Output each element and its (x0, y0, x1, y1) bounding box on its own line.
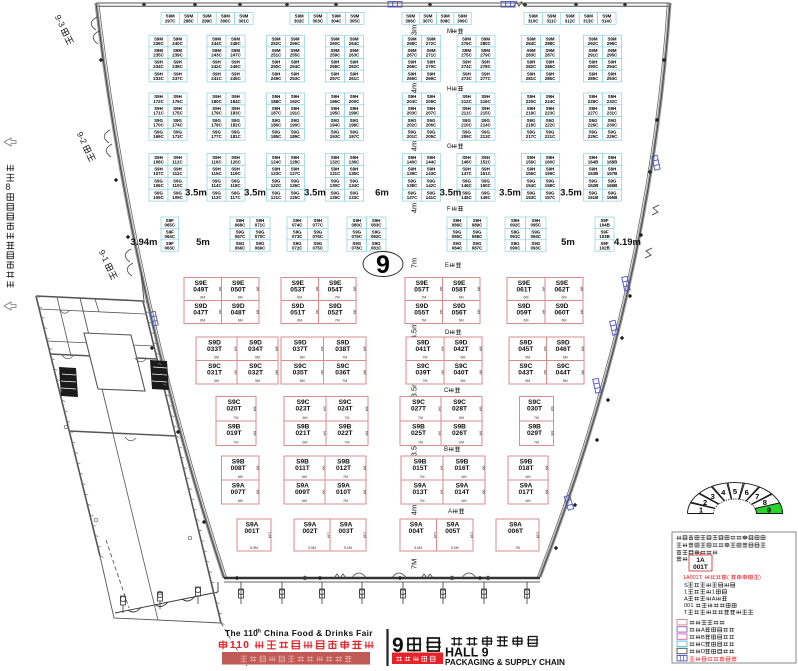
svg-text:077C: 077C (313, 223, 324, 228)
svg-text:132C: 132C (330, 159, 341, 164)
svg-text:5M: 5M (525, 356, 530, 360)
svg-text:057T: 057T (414, 286, 429, 293)
svg-text:033T: 033T (207, 346, 222, 353)
svg-text:190C: 190C (290, 122, 301, 127)
svg-text:1: 1 (712, 590, 715, 596)
svg-text:6M: 6M (302, 499, 307, 503)
svg-text:138C: 138C (407, 183, 418, 188)
svg-text:4m: 4m (410, 141, 419, 151)
svg-text:270C: 270C (426, 64, 437, 69)
svg-text:151C: 151C (480, 171, 491, 176)
svg-text:293C: 293C (607, 76, 618, 81)
svg-text:6M: 6M (526, 475, 531, 479)
svg-text:9: 9 (376, 251, 390, 279)
svg-text:158C: 158C (545, 183, 556, 188)
svg-text:265C: 265C (407, 76, 418, 81)
svg-text:237C: 237C (172, 76, 183, 81)
svg-text:008T: 008T (231, 465, 246, 472)
svg-text:301C: 301C (239, 18, 250, 23)
svg-text:4m: 4m (410, 203, 419, 213)
svg-text:152C: 152C (480, 159, 491, 164)
svg-text:10M: 10M (268, 532, 272, 539)
svg-text:262C: 262C (349, 64, 360, 69)
svg-text:200C: 200C (349, 99, 360, 104)
svg-text:7M: 7M (418, 416, 423, 420)
svg-text:110: 110 (230, 640, 250, 651)
svg-text:134C: 134C (349, 183, 360, 188)
svg-text:4m: 4m (410, 505, 419, 515)
svg-text:8M: 8M (477, 287, 481, 292)
svg-text:6M: 6M (545, 466, 549, 471)
svg-text:243C: 243C (211, 53, 222, 58)
svg-text:105C: 105C (153, 195, 164, 200)
svg-text:160C: 160C (545, 159, 556, 164)
svg-text:169C: 169C (153, 134, 164, 139)
svg-text:3.5m: 3.5m (499, 188, 521, 199)
svg-text:206C: 206C (426, 122, 437, 127)
svg-text:6M: 6M (303, 441, 308, 445)
svg-text:7M: 7M (410, 559, 419, 569)
svg-text:039T: 039T (415, 369, 430, 376)
svg-text:091C: 091C (510, 234, 521, 239)
svg-text:171C: 171C (153, 111, 164, 116)
svg-text:5m: 5m (561, 237, 575, 248)
svg-text:015T: 015T (412, 465, 427, 472)
svg-text:273C: 273C (461, 76, 472, 81)
svg-text:187C: 187C (271, 111, 282, 116)
svg-text:228C: 228C (588, 99, 599, 104)
svg-text:314C: 314C (602, 18, 613, 23)
svg-text:5.0M: 5.0M (344, 546, 352, 550)
svg-text:082C: 082C (371, 234, 382, 239)
svg-text:078C: 078C (352, 245, 363, 250)
svg-text:250C: 250C (271, 64, 282, 69)
svg-text:3.5m: 3.5m (244, 188, 266, 199)
svg-text:062T: 062T (554, 286, 569, 293)
svg-text:087C: 087C (472, 245, 483, 250)
svg-text:063C: 063C (165, 245, 176, 250)
svg-text:306C: 306C (405, 18, 416, 23)
svg-text:034T: 034T (248, 346, 263, 353)
svg-text:8M: 8M (479, 370, 483, 375)
svg-text:060T: 060T (554, 309, 569, 316)
svg-text:049T: 049T (193, 286, 208, 293)
svg-text:061T: 061T (516, 286, 531, 293)
svg-text:072C: 072C (292, 245, 303, 250)
svg-text:141C: 141C (426, 195, 437, 200)
svg-text:5M: 5M (255, 356, 260, 360)
svg-text:026T: 026T (452, 430, 467, 437)
svg-text:044T: 044T (556, 369, 571, 376)
svg-text:1A: 1A (696, 557, 705, 564)
svg-text:6M: 6M (297, 296, 302, 300)
svg-text:155C: 155C (526, 171, 537, 176)
svg-text:019T: 019T (226, 430, 241, 437)
svg-text:287C: 287C (545, 53, 556, 58)
svg-text:051T: 051T (290, 309, 305, 316)
svg-text:191C: 191C (290, 111, 301, 116)
svg-text:3.94m: 3.94m (131, 237, 158, 248)
svg-text:107C: 107C (153, 171, 164, 176)
svg-text:303C: 303C (313, 18, 324, 23)
svg-text:177C: 177C (211, 134, 222, 139)
svg-text:China Food & Drinks Fair: China Food & Drinks Fair (264, 628, 373, 638)
svg-text:012T: 012T (336, 465, 351, 472)
svg-text:030T: 030T (527, 405, 542, 412)
svg-text:029T: 029T (527, 430, 542, 437)
svg-text:8M: 8M (581, 346, 585, 351)
svg-text:5m: 5m (196, 237, 210, 248)
svg-text:C: C (444, 387, 449, 394)
svg-text:001T: 001T (693, 564, 708, 571)
svg-text:094C: 094C (531, 234, 542, 239)
svg-text:161B: 161B (588, 195, 599, 200)
svg-text:6M: 6M (482, 466, 486, 471)
svg-text:296C: 296C (607, 41, 618, 46)
svg-text:239C: 239C (172, 53, 183, 58)
svg-text:6M: 6M (562, 319, 567, 323)
svg-text:240C: 240C (172, 41, 183, 46)
svg-text:F: F (447, 206, 451, 213)
svg-text:081C: 081C (371, 245, 382, 250)
svg-text:123C: 123C (271, 171, 282, 176)
svg-text:6M: 6M (365, 431, 369, 436)
svg-text:025T: 025T (411, 430, 426, 437)
svg-text:313C: 313C (583, 18, 594, 23)
svg-text:219C: 219C (526, 111, 537, 116)
svg-text:PACKAGING & SUPPLY CHAIN: PACKAGING & SUPPLY CHAIN (445, 658, 565, 666)
svg-text:276C: 276C (461, 41, 472, 46)
svg-text:8M: 8M (363, 370, 367, 375)
svg-text:8M: 8M (353, 310, 357, 315)
svg-text:056T: 056T (452, 309, 467, 316)
svg-text:004T: 004T (409, 528, 424, 535)
svg-text:232C: 232C (607, 99, 618, 104)
svg-text:150C: 150C (480, 183, 491, 188)
svg-text:7M: 7M (342, 379, 347, 383)
svg-text:3m: 3m (410, 25, 419, 35)
svg-text:308C: 308C (440, 18, 451, 23)
svg-text:192C: 192C (290, 99, 301, 104)
svg-text:204C: 204C (407, 99, 418, 104)
svg-text:117C: 117C (230, 195, 241, 200)
svg-text:073C: 073C (292, 234, 303, 239)
svg-text:1: 1 (684, 590, 687, 596)
svg-text:176C: 176C (172, 99, 183, 104)
svg-text:167B: 167B (607, 171, 618, 176)
svg-text:6M: 6M (297, 319, 302, 323)
svg-text:202C: 202C (407, 122, 418, 127)
svg-text:307C: 307C (423, 18, 434, 23)
svg-text:095C: 095C (531, 223, 542, 228)
svg-text:M: M (447, 28, 452, 35)
svg-text:6M: 6M (302, 475, 307, 479)
svg-text:286C: 286C (545, 64, 556, 69)
svg-text:079C: 079C (352, 234, 363, 239)
svg-text:8M: 8M (580, 287, 584, 292)
svg-text:048T: 048T (231, 309, 246, 316)
svg-text:6M: 6M (526, 499, 531, 503)
svg-text:271C: 271C (426, 53, 437, 58)
svg-text:198C: 198C (349, 122, 360, 127)
svg-text:236C: 236C (153, 41, 164, 46)
svg-text:8M: 8M (363, 346, 367, 351)
svg-text:112C: 112C (172, 159, 183, 164)
svg-text:016T: 016T (454, 465, 469, 472)
svg-text:6M: 6M (459, 319, 464, 323)
svg-text:179C: 179C (211, 111, 222, 116)
svg-text:281C: 281C (526, 76, 537, 81)
svg-text:6M: 6M (253, 406, 257, 411)
svg-text:014T: 014T (454, 489, 469, 496)
svg-text:215C: 215C (480, 111, 491, 116)
svg-text:225C: 225C (588, 134, 599, 139)
svg-text:069C: 069C (255, 245, 266, 250)
svg-text:045T: 045T (518, 346, 533, 353)
svg-text:129C: 129C (330, 195, 341, 200)
svg-text:7M: 7M (421, 319, 426, 323)
svg-text:5.5M: 5.5M (250, 546, 258, 550)
svg-text:089C: 089C (472, 223, 483, 228)
svg-text:052T: 052T (328, 309, 343, 316)
svg-text:249C: 249C (271, 76, 282, 81)
svg-text:7M: 7M (534, 416, 539, 420)
svg-text:6M: 6M (300, 356, 305, 360)
svg-text:222C: 222C (545, 122, 556, 127)
svg-text:022T: 022T (337, 430, 352, 437)
svg-text:085C: 085C (452, 234, 463, 239)
svg-text:290C: 290C (588, 64, 599, 69)
svg-text:3: 3 (711, 492, 715, 501)
svg-text:164B: 164B (588, 159, 599, 164)
svg-text:043T: 043T (518, 369, 533, 376)
svg-text:221C: 221C (545, 134, 556, 139)
svg-text:242C: 242C (211, 64, 222, 69)
svg-text:S: S (684, 583, 688, 589)
svg-text:268C: 268C (407, 41, 418, 46)
svg-text:7M: 7M (342, 356, 347, 360)
svg-text:234C: 234C (153, 64, 164, 69)
svg-text:7M: 7M (421, 296, 426, 300)
svg-text:292C: 292C (588, 41, 599, 46)
svg-text:(: ( (727, 575, 729, 581)
svg-text:6M: 6M (238, 475, 243, 479)
svg-text:275C: 275C (461, 53, 472, 58)
svg-text:156C: 156C (526, 159, 537, 164)
svg-text:083C: 083C (371, 223, 382, 228)
svg-text:The 110: The 110 (225, 628, 258, 638)
svg-text:A: A (712, 596, 716, 602)
svg-text:159C: 159C (545, 171, 556, 176)
svg-text:194C: 194C (330, 122, 341, 127)
svg-text:040T: 040T (453, 369, 468, 376)
svg-text:115C: 115C (211, 171, 222, 176)
svg-text:7M: 7M (420, 475, 425, 479)
svg-text:6M: 6M (238, 499, 243, 503)
svg-text:6M: 6M (563, 356, 568, 360)
svg-text:068C: 068C (235, 223, 246, 228)
svg-text:255C: 255C (290, 53, 301, 58)
svg-text:294C: 294C (607, 64, 618, 69)
svg-text:299C: 299C (202, 18, 213, 23)
svg-text:D: D (701, 649, 705, 655)
svg-text:7M: 7M (345, 441, 350, 445)
svg-text:6M: 6M (200, 296, 205, 300)
svg-text:110C: 110C (172, 183, 183, 188)
svg-text:214C: 214C (480, 122, 491, 127)
svg-text:8M: 8M (275, 346, 279, 351)
svg-text:3.5m: 3.5m (560, 188, 582, 199)
svg-text:209C: 209C (461, 134, 472, 139)
svg-text:125C: 125C (290, 195, 301, 200)
svg-text:005T: 005T (445, 528, 460, 535)
svg-text:5.5M: 5.5M (308, 546, 316, 550)
svg-text:013T: 013T (412, 489, 427, 496)
svg-text:135C: 135C (349, 171, 360, 176)
svg-text:065C: 065C (165, 223, 176, 228)
svg-text:144C: 144C (426, 159, 437, 164)
svg-text:4m: 4m (410, 83, 419, 93)
svg-text:066C: 066C (235, 245, 246, 250)
svg-text:193C: 193C (330, 134, 341, 139)
svg-text:124C: 124C (271, 159, 282, 164)
svg-text:195C: 195C (330, 111, 341, 116)
svg-text:053T: 053T (290, 286, 305, 293)
svg-text:028T: 028T (452, 405, 467, 412)
svg-text:121C: 121C (271, 195, 282, 200)
svg-text:241C: 241C (211, 76, 222, 81)
svg-text:C: C (701, 642, 705, 648)
svg-text:291C: 291C (588, 53, 599, 58)
svg-text:148C: 148C (461, 159, 472, 164)
svg-text:6M: 6M (479, 431, 483, 436)
svg-text:036T: 036T (335, 369, 350, 376)
svg-text:199C: 199C (349, 111, 360, 116)
svg-text:283C: 283C (526, 53, 537, 58)
svg-text:6M: 6M (303, 416, 308, 420)
svg-text:6M: 6M (482, 490, 486, 495)
svg-text:7M: 7M (335, 319, 340, 323)
svg-text:172C: 172C (153, 99, 164, 104)
svg-text:7M: 7M (423, 356, 428, 360)
svg-text:7M: 7M (335, 296, 340, 300)
svg-text:090C: 090C (510, 245, 521, 250)
svg-text:024T: 024T (337, 405, 352, 412)
svg-text:109C: 109C (172, 195, 183, 200)
svg-text:011T: 011T (295, 465, 310, 472)
svg-text:6M: 6M (238, 296, 243, 300)
svg-text:201C: 201C (407, 134, 418, 139)
svg-text:178C: 178C (211, 122, 222, 127)
svg-text:140C: 140C (407, 159, 418, 164)
svg-text:001T: 001T (244, 528, 259, 535)
svg-text:7M: 7M (343, 475, 348, 479)
svg-text:067C: 067C (235, 234, 246, 239)
svg-text:277C: 277C (480, 76, 491, 81)
svg-text:7: 7 (755, 492, 759, 501)
svg-text:037T: 037T (293, 346, 308, 353)
svg-text:263C: 263C (349, 53, 360, 58)
svg-text:114C: 114C (211, 183, 222, 188)
svg-text:G: G (447, 143, 452, 150)
svg-text:020T: 020T (226, 405, 241, 412)
svg-text:6m: 6m (375, 188, 389, 199)
svg-text:266C: 266C (407, 64, 418, 69)
svg-text:203C: 203C (407, 111, 418, 116)
svg-text:188C: 188C (271, 99, 282, 104)
svg-text:118C: 118C (230, 183, 241, 188)
svg-text:217C: 217C (526, 134, 537, 139)
svg-text:102B: 102B (599, 245, 610, 250)
svg-text:5M: 5M (214, 356, 219, 360)
svg-text:244C: 244C (211, 41, 222, 46)
svg-text:T: T (684, 610, 688, 616)
svg-text:058T: 058T (452, 286, 467, 293)
svg-text:126C: 126C (290, 183, 301, 188)
svg-text:280C: 280C (480, 41, 491, 46)
svg-text:086C: 086C (452, 223, 463, 228)
svg-text:10M: 10M (536, 532, 540, 539)
svg-text:227C: 227C (588, 111, 599, 116)
svg-text:054T: 054T (328, 286, 343, 293)
svg-text:5M: 5M (255, 379, 260, 383)
svg-text:173C: 173C (172, 134, 183, 139)
svg-text:7M: 7M (345, 416, 350, 420)
svg-text:A: A (684, 596, 688, 602)
svg-text:207C: 207C (426, 111, 437, 116)
svg-text:212C: 212C (461, 99, 472, 104)
svg-text:196C: 196C (330, 99, 341, 104)
svg-text:009T: 009T (295, 489, 310, 496)
svg-text:231C: 231C (607, 111, 618, 116)
svg-text:3.5m: 3.5m (304, 188, 326, 199)
svg-text:8M: 8M (256, 287, 260, 292)
svg-text:6M: 6M (363, 466, 367, 471)
svg-text:038T: 038T (335, 346, 350, 353)
svg-text:229C: 229C (607, 134, 618, 139)
svg-text:6M: 6M (365, 406, 369, 411)
svg-text:174C: 174C (172, 122, 183, 127)
svg-text:092C: 092C (510, 223, 521, 228)
svg-text:6M: 6M (479, 406, 483, 411)
svg-text:185C: 185C (271, 134, 282, 139)
svg-text:2: 2 (703, 498, 707, 507)
svg-text:288C: 288C (545, 41, 556, 46)
svg-text:211C: 211C (461, 111, 472, 116)
svg-text:5.0M: 5.0M (451, 546, 459, 550)
svg-text:220C: 220C (526, 99, 537, 104)
svg-text:018T: 018T (518, 465, 533, 472)
svg-text:017T: 017T (518, 489, 533, 496)
svg-text:111C: 111C (172, 171, 183, 176)
svg-text:208C: 208C (426, 99, 437, 104)
svg-text:136C: 136C (349, 159, 360, 164)
svg-text:035T: 035T (293, 369, 308, 376)
svg-text:285C: 285C (545, 76, 556, 81)
svg-text:8M: 8M (479, 346, 483, 351)
svg-text:059T: 059T (516, 309, 531, 316)
svg-text:210C: 210C (461, 122, 472, 127)
svg-text:7M: 7M (534, 441, 539, 445)
svg-text:226C: 226C (588, 122, 599, 127)
svg-text:010T: 010T (336, 489, 351, 496)
svg-text:224C: 224C (545, 99, 556, 104)
svg-text:181C: 181C (230, 134, 241, 139)
svg-text:257C: 257C (330, 76, 341, 81)
svg-text:6M: 6M (524, 296, 529, 300)
svg-text:4.19m: 4.19m (614, 237, 641, 248)
svg-text:8: 8 (6, 182, 11, 192)
